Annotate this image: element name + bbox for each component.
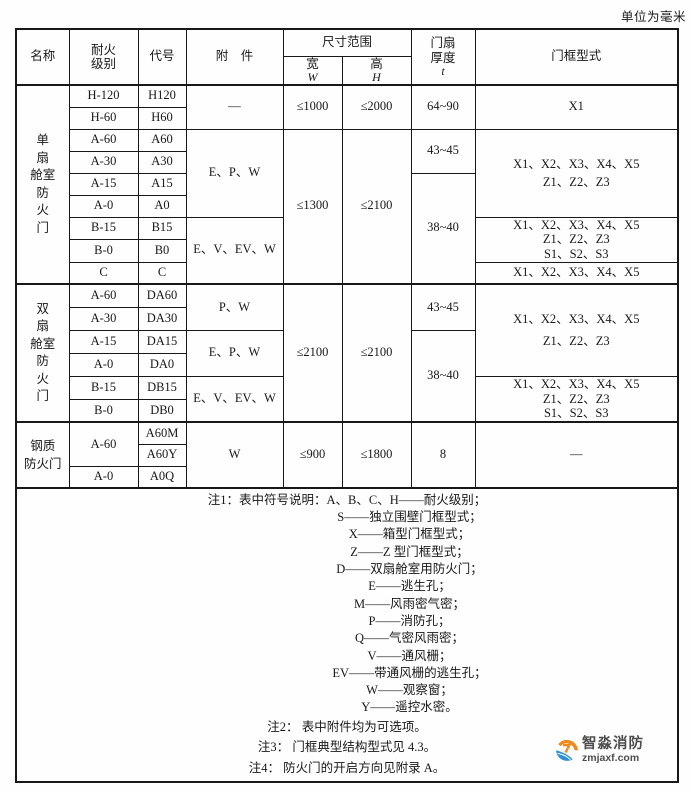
thickness-cell: 43~45 [411, 284, 475, 330]
code-cell: H60 [138, 107, 186, 129]
code-cell: DB0 [138, 399, 186, 422]
rating-cell: A-15 [69, 330, 138, 353]
code-cell: B0 [138, 240, 186, 263]
frame-cell: — [475, 422, 678, 488]
brand-domain: zmjaxf.com [582, 752, 644, 764]
frame-cell: X1、X2、X3、X4、X5 Z1、Z2、Z3 S1、S2、S3 [475, 376, 678, 422]
symbol-legend: S——独立围壁门框型式； X——箱型门框型式； Z——Z 型门框型式； D——双… [17, 509, 677, 717]
legend-item: E——逃生孔； [142, 578, 677, 595]
code-cell: DA15 [138, 330, 186, 353]
legend-item: P——消防孔； [142, 613, 677, 630]
rating-cell: B-15 [69, 376, 138, 399]
code-cell: H120 [138, 85, 186, 107]
brand-text: 智淼消防 zmjaxf.com [582, 736, 644, 764]
accessory-cell: P、W [186, 284, 283, 330]
rating-cell: A-15 [69, 173, 138, 195]
height-cell: ≤2000 [342, 85, 411, 129]
accessory-cell: E、V、EV、W [186, 376, 283, 422]
thickness-cell: 38~40 [411, 330, 475, 422]
accessory-cell: W [186, 422, 283, 488]
legend-item: D——双扇舱室用防火门； [142, 561, 677, 578]
group2-name-cell: 双 扇 舱室 防 火 门 [16, 284, 69, 422]
rating-cell: A-0 [69, 353, 138, 376]
frame-cell: X1、X2、X3、X4、X5 Z1、Z2、Z3 [475, 284, 678, 376]
accessory-cell: E、V、EV、W [186, 217, 283, 284]
code-cell: DB15 [138, 376, 186, 399]
rating-cell: H-120 [69, 85, 138, 107]
col-header-accessory: 附 件 [186, 29, 283, 85]
col-header-size-range: 尺寸范围 [283, 29, 411, 56]
width-cell: ≤2100 [283, 284, 342, 422]
table-row: 双 扇 舱室 防 火 门 A-60 DA60 P、W ≤2100 ≤2100 4… [16, 284, 678, 307]
col-header-width: 宽 W [283, 56, 342, 85]
col-header-code: 代号 [138, 29, 186, 85]
legend-item: Q——气密风雨密； [142, 630, 677, 647]
frame-cell: X1、X2、X3、X4、X5 Z1、Z2、Z3 S1、S2、S3 [475, 217, 678, 262]
legend-item: EV——带通风栅的逃生孔； [142, 665, 677, 682]
height-cell: ≤2100 [342, 129, 411, 284]
code-cell: C [138, 262, 186, 284]
col-header-height: 高 H [342, 56, 411, 85]
rating-cell: A-30 [69, 307, 138, 330]
document-page: 单位为毫米 名称 耐火 级别 代号 附 件 尺寸范围 门扇 厚度 t [0, 0, 691, 792]
thickness-cell: 8 [411, 422, 475, 488]
group3-name-cell: 钢质 防火门 [16, 422, 69, 488]
code-cell: A0 [138, 195, 186, 217]
col-header-frame-type: 门框型式 [475, 29, 678, 85]
code-cell: A15 [138, 173, 186, 195]
brand-name: 智淼消防 [582, 736, 644, 752]
accessory-cell: E、P、W [186, 129, 283, 217]
rating-cell: C [69, 262, 138, 284]
code-cell: A60Y [138, 444, 186, 466]
group1-name-cell: 单 扇 舱室 防 火 门 [16, 85, 69, 284]
code-cell: A60 [138, 129, 186, 151]
table-row: A-60 A60 E、P、W ≤1300 ≤2100 43~45 X1、X2、X… [16, 129, 678, 151]
table-row: 钢质 防火门 A-60 A60M W ≤900 ≤1800 8 — [16, 422, 678, 444]
legend-item: Z——Z 型门框型式； [142, 544, 677, 561]
height-cell: ≤1800 [342, 422, 411, 488]
note-2: 注2： 表中附件均为可选项。 [17, 717, 677, 738]
code-cell: DA0 [138, 353, 186, 376]
rating-cell: A-0 [69, 466, 138, 488]
frame-cell: X1 [475, 85, 678, 129]
width-cell: ≤900 [283, 422, 342, 488]
rating-cell: B-15 [69, 217, 138, 240]
frame-cell: X1、X2、X3、X4、X5 Z1、Z2、Z3 [475, 129, 678, 217]
rating-cell: A-0 [69, 195, 138, 217]
col-header-name: 名称 [16, 29, 69, 85]
col-header-leaf-thickness: 门扇 厚度 t [411, 29, 475, 85]
brand-circle-icon [555, 738, 579, 762]
legend-item: X——箱型门框型式； [142, 526, 677, 543]
code-cell: B15 [138, 217, 186, 240]
note-1: 注1：表中符号说明：A、B、C、H——耐火级别； [17, 492, 677, 510]
width-cell: ≤1000 [283, 85, 342, 129]
rating-cell: A-30 [69, 151, 138, 173]
code-cell: A0Q [138, 466, 186, 488]
rating-cell: B-0 [69, 399, 138, 422]
table-row: 单 扇 舱室 防 火 门 H-120 H120 — ≤1000 ≤2000 64… [16, 85, 678, 107]
thickness-cell: 38~40 [411, 173, 475, 284]
width-cell: ≤1300 [283, 129, 342, 284]
rating-cell: A-60 [69, 422, 138, 466]
rating-cell: H-60 [69, 107, 138, 129]
thickness-cell: 64~90 [411, 85, 475, 129]
unit-label: 单位为毫米 [621, 6, 686, 25]
legend-item: V——通风栅； [142, 648, 677, 665]
height-cell: ≤2100 [342, 284, 411, 422]
legend-item: Y——遥控水密。 [142, 699, 677, 716]
rating-cell: A-60 [69, 129, 138, 151]
thickness-cell: 43~45 [411, 129, 475, 173]
code-cell: A60M [138, 422, 186, 444]
rating-cell: A-60 [69, 284, 138, 307]
code-cell: DA30 [138, 307, 186, 330]
legend-item: S——独立围壁门框型式； [142, 509, 677, 526]
fire-door-spec-table: 名称 耐火 级别 代号 附 件 尺寸范围 门扇 厚度 t 门框型式 宽 W [15, 28, 679, 783]
legend-item: W——观察窗； [142, 682, 677, 699]
accessory-cell: — [186, 85, 283, 129]
frame-cell: X1、X2、X3、X4、X5 [475, 262, 678, 284]
watermark-logo: 智淼消防 zmjaxf.com [555, 736, 644, 764]
legend-item: M——风雨密气密； [142, 596, 677, 613]
rating-cell: B-0 [69, 240, 138, 263]
code-cell: A30 [138, 151, 186, 173]
col-header-fire-rating: 耐火 级别 [69, 29, 138, 85]
accessory-cell: E、P、W [186, 330, 283, 376]
code-cell: DA60 [138, 284, 186, 307]
